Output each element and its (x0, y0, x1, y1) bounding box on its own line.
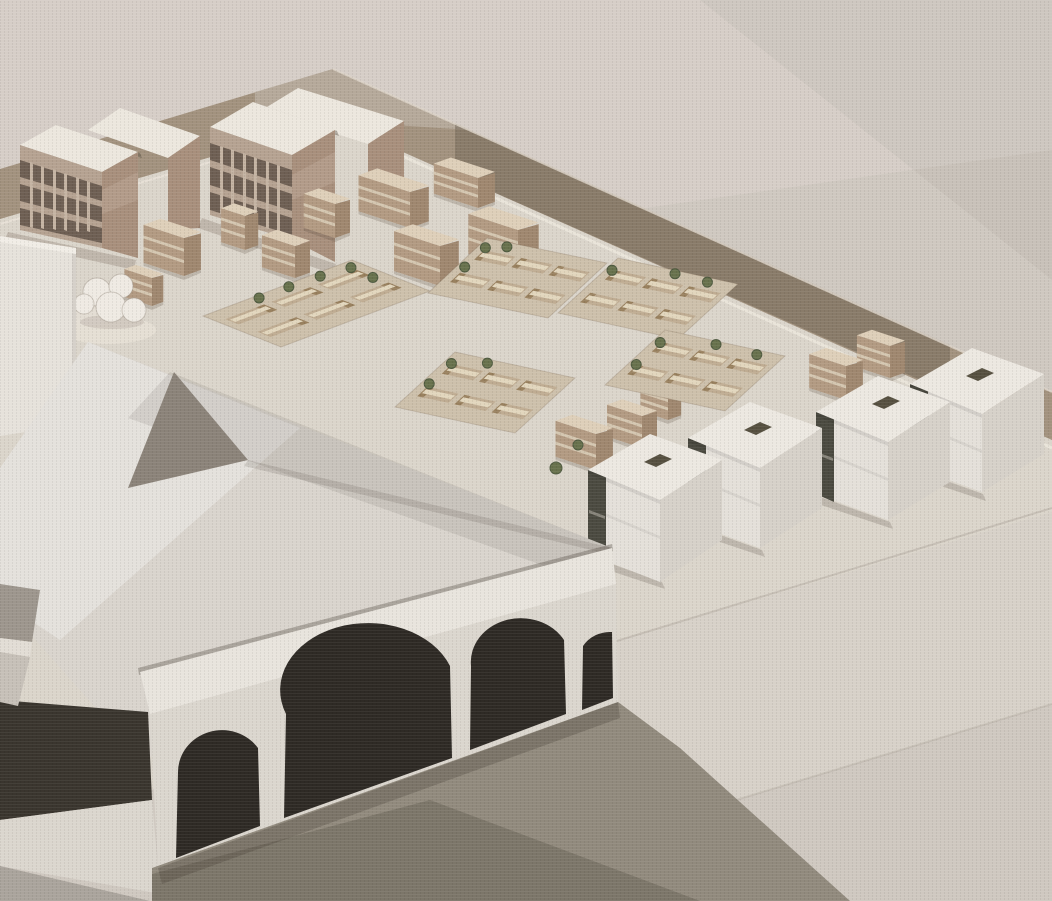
tree (573, 440, 583, 450)
tree (655, 338, 665, 348)
midrise-block-side (410, 187, 429, 228)
tree (346, 263, 356, 273)
tree (702, 277, 712, 287)
tree (424, 379, 434, 389)
tree (460, 262, 470, 272)
midrise-block-side (890, 342, 905, 378)
slab-window-mullion (41, 166, 44, 229)
architectural-model-photo (0, 0, 1052, 901)
tree (752, 350, 762, 360)
sphere-tree (96, 292, 126, 322)
midrise-block-side (478, 173, 495, 208)
slab-window-mullion (64, 173, 67, 231)
tree (368, 273, 378, 283)
tree (550, 462, 562, 474)
arcade-arch-opening (582, 632, 613, 710)
slab-window-mullion (220, 146, 223, 215)
architectural-model-photograph (0, 0, 1052, 901)
sphere-tree (74, 294, 94, 314)
tree (446, 358, 456, 368)
tree (502, 242, 512, 252)
tree (482, 358, 492, 368)
tree (254, 293, 264, 303)
tree (670, 269, 680, 279)
tree (631, 360, 641, 370)
midrise-block-side (335, 200, 350, 238)
slab-window-mullion (76, 177, 79, 232)
slab-window-mullion (277, 165, 280, 232)
tree (480, 243, 490, 253)
sphere-tree (122, 298, 146, 322)
midrise-block-side (152, 275, 163, 306)
tree (711, 339, 721, 349)
slab-window-mullion (87, 181, 90, 232)
midrise-block-side (245, 213, 258, 250)
slab-window-mullion (266, 161, 269, 229)
tree (607, 265, 617, 275)
slab-window-mullion (30, 162, 33, 228)
tree (315, 271, 325, 281)
midrise-block-side (184, 233, 201, 276)
tree (284, 282, 294, 292)
arcade-left-shadow-zone (0, 700, 152, 820)
midrise-block-side (295, 242, 310, 278)
slab-window-mullion (53, 169, 56, 230)
